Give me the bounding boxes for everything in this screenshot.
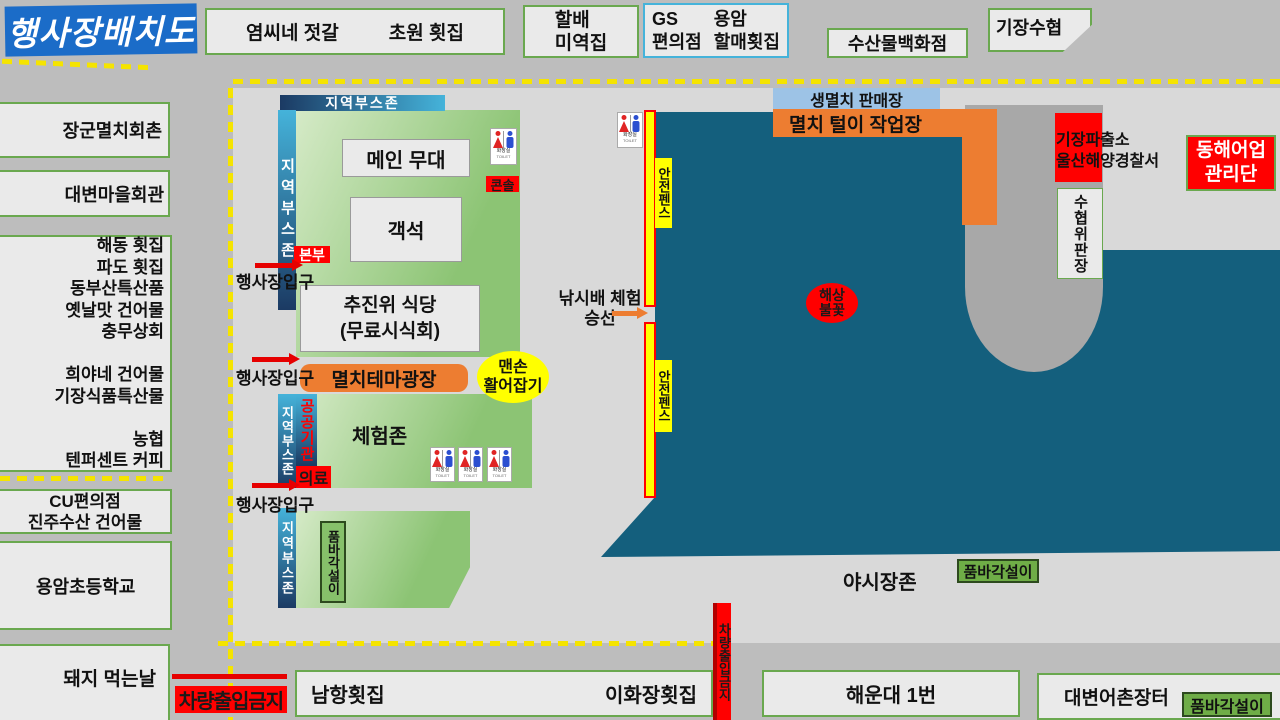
pumba-label: 품바각설이 bbox=[1190, 693, 1264, 717]
woman-icon bbox=[432, 450, 441, 467]
toilet-label-en: TOILET bbox=[493, 473, 507, 478]
fresh-anchovy-sale-area: 생멸치 판매장 bbox=[773, 88, 940, 109]
safety-fence-text: 안전펜스 bbox=[655, 158, 672, 228]
safety-fence-label-bottom: 안전펜스 bbox=[655, 360, 672, 432]
experience-zone-label: 체험존 bbox=[352, 420, 407, 449]
event-venue-map: 행사장배치도 염씨네 젓갈 초원 횟집 할배 미역집 GS 편의점 용암 할매횟… bbox=[0, 0, 1280, 720]
map-title-banner: 행사장배치도 bbox=[5, 3, 198, 56]
shop-yeomssi-jeotgal: 염씨네 젓갈 bbox=[246, 18, 339, 45]
public-org-label: 공공기관 bbox=[296, 394, 317, 466]
committee-dining-box: 추진위 식당 (무료시식회) bbox=[300, 285, 480, 352]
toilet-icon: 화장실 TOILET bbox=[490, 128, 517, 165]
woman-icon bbox=[493, 131, 502, 148]
man-icon bbox=[472, 450, 481, 467]
shop-box-bottom1: 남항횟집 이화장횟집 bbox=[295, 670, 713, 717]
shop-fish-department: 수산물백화점 bbox=[848, 30, 947, 56]
anchovy-shaking-area-arm bbox=[962, 137, 997, 225]
medical-label: 의료 bbox=[299, 465, 328, 489]
seating-box: 객석 bbox=[350, 197, 462, 262]
anchovy-shaking-label: 멸치 털이 작업장 bbox=[789, 110, 922, 137]
yongam-elementary-school: 용암초등학교 bbox=[36, 573, 135, 599]
public-org-bar: 공공기관 bbox=[296, 394, 317, 466]
toilet-icon: 화장실 TOILET bbox=[458, 447, 483, 482]
toilet-label-en: TOILET bbox=[623, 138, 637, 143]
shop-gs-store: GS 편의점 bbox=[652, 8, 702, 54]
main-stage-label: 메인 무대 bbox=[366, 144, 445, 173]
no-vehicle-bar bbox=[172, 674, 287, 679]
road-dash-left bbox=[0, 476, 168, 481]
road-dash-vertical bbox=[228, 88, 233, 720]
main-stage-box: 메인 무대 bbox=[342, 139, 470, 177]
police-station-label: 기장파출소 울산해양경찰서 bbox=[1056, 130, 1159, 172]
sea-fireworks-spot: 해상 불꽃 bbox=[806, 283, 858, 323]
shop-box-janggun: 장군멸치회촌 bbox=[0, 102, 170, 158]
no-vehicle-label: 차량출입금지 bbox=[179, 685, 283, 714]
shop-yongam-hoetjip: 용암 할매횟집 bbox=[714, 8, 780, 54]
shop-janggun-anchovy: 장군멸치회촌 bbox=[63, 117, 162, 143]
shop-box-gs-yongam: GS 편의점 용암 할매횟집 bbox=[643, 3, 789, 58]
shop-cu-jinju: CU편의점 진주수산 건어물 bbox=[28, 491, 142, 533]
shop-box-school: 용암초등학교 bbox=[0, 541, 172, 630]
shop-box-village-hall: 대변마을회관 bbox=[0, 170, 170, 217]
pumba-label: 품바각설이 bbox=[322, 523, 344, 601]
pumba-quay-box: 품바각설이 bbox=[957, 559, 1039, 583]
no-vehicle-strip: 차량출입금지 bbox=[713, 603, 731, 720]
shop-namhang: 남항횟집 bbox=[311, 679, 385, 708]
shop-gijang-suhyup: 기장수협 bbox=[996, 18, 1062, 38]
shop-box-gijang-suhyup: 기장수협 bbox=[988, 8, 1092, 52]
local-booth-zone-bottom-bar: 지역부스존 bbox=[278, 508, 296, 608]
local-booth-zone-label: 지역부스존 bbox=[278, 394, 296, 488]
local-booth-zone-label: 지역부스존 bbox=[278, 508, 296, 608]
shop-box-top1: 염씨네 젓갈 초원 횟집 bbox=[205, 8, 505, 55]
fishing-boat-boarding-label: 낚시배 체험 승선 bbox=[552, 289, 648, 329]
toilet-label-en: TOILET bbox=[497, 154, 511, 159]
daebyeon-market-label: 대변어촌장터 bbox=[1064, 683, 1169, 710]
local-booth-zone-top-bar: 지역부스존 bbox=[280, 95, 445, 111]
safety-fence-text: 안전펜스 bbox=[655, 360, 672, 432]
road-dash-top bbox=[233, 79, 1280, 84]
entrance-label-1: 행사장입구 bbox=[236, 268, 314, 293]
daebyeon-village-hall: 대변마을회관 bbox=[65, 181, 164, 207]
pig-eating-day: 돼지 먹는날 bbox=[63, 664, 156, 720]
shop-chowon-hoetjip: 초원 횟집 bbox=[389, 18, 464, 45]
road-dash-bottom bbox=[218, 641, 713, 646]
man-icon bbox=[501, 450, 510, 467]
man-icon bbox=[632, 115, 641, 132]
sea-fireworks-label: 해상 불꽃 bbox=[819, 288, 845, 318]
toilet-label-en: TOILET bbox=[464, 473, 478, 478]
no-vehicle-label: 차량출입금지 bbox=[717, 603, 731, 720]
night-market-zone-label: 야시장존 bbox=[843, 566, 917, 595]
pumba-label: 품바각설이 bbox=[963, 561, 1032, 582]
no-vehicle-sign: 차량출입금지 bbox=[175, 686, 287, 713]
shop-box-cu: CU편의점 진주수산 건어물 bbox=[0, 489, 172, 534]
shop-box-halbae: 할배 미역집 bbox=[523, 5, 639, 58]
donghae-fishery-box: 동해어업 관리단 bbox=[1186, 135, 1276, 191]
woman-icon bbox=[489, 450, 498, 467]
anchovy-theme-plaza-label: 멸치테마광장 bbox=[332, 365, 437, 392]
console-box: 콘솔 bbox=[486, 176, 519, 192]
bare-hand-catch-label: 맨손 활어잡기 bbox=[484, 358, 543, 396]
woman-icon bbox=[620, 115, 629, 132]
toilet-icon: 화장실 TOILET bbox=[617, 112, 643, 148]
seating-label: 객석 bbox=[388, 215, 425, 244]
local-booth-zone-label: 지역부스존 bbox=[325, 93, 399, 113]
suhyup-market-box: 수협위판장 bbox=[1057, 188, 1103, 279]
anchovy-theme-plaza: 멸치테마광장 bbox=[300, 364, 468, 392]
shop-box-fish-department: 수산물백화점 bbox=[827, 28, 968, 58]
console-label: 콘솔 bbox=[491, 175, 515, 194]
donghae-fishery-label: 동해어업 관리단 bbox=[1196, 139, 1266, 187]
entrance-arrow-icon bbox=[252, 483, 290, 488]
entrance-label-2: 행사장입구 bbox=[236, 364, 314, 389]
entrance-arrow-icon bbox=[252, 357, 290, 362]
man-icon bbox=[505, 131, 514, 148]
entrance-label-3: 행사장입구 bbox=[236, 491, 314, 516]
shop-ihwajang: 이화장횟집 bbox=[605, 679, 697, 708]
pumba-vertical-box: 품바각설이 bbox=[320, 521, 346, 603]
toilet-figures bbox=[493, 131, 514, 148]
anchovy-shaking-area: 멸치 털이 작업장 bbox=[773, 109, 997, 137]
shop-box-pig-day: 돼지 먹는날 bbox=[0, 644, 170, 720]
shop-box-list: 해동 횟집 파도 횟집 동부산특산품 옛날맛 건어물 충무상회 희야네 건어물 … bbox=[0, 235, 172, 472]
man-icon bbox=[444, 450, 453, 467]
toilet-icon: 화장실 TOILET bbox=[487, 447, 512, 482]
road-dash-title bbox=[2, 59, 152, 71]
committee-dining-label: 추진위 식당 (무료시식회) bbox=[340, 293, 440, 345]
safety-fence-label-top: 안전펜스 bbox=[655, 158, 672, 228]
fresh-anchovy-sale-label: 생멸치 판매장 bbox=[810, 87, 903, 111]
map-title: 행사장배치도 bbox=[7, 4, 196, 55]
haeundae-bus-label: 해운대 1번 bbox=[846, 679, 936, 708]
shop-halbae-miyeok: 할배 미역집 bbox=[555, 9, 607, 55]
pumba-bottom-box: 품바각설이 bbox=[1182, 692, 1272, 717]
medical-box: 의료 bbox=[296, 466, 331, 488]
suhyup-market-label: 수협위판장 bbox=[1058, 189, 1102, 278]
toilet-icon: 화장실 TOILET bbox=[430, 447, 455, 482]
toilet-label-en: TOILET bbox=[436, 473, 450, 478]
boarding-arrow-icon bbox=[612, 311, 638, 316]
local-booth-zone-mid-bar: 지역부스존 bbox=[278, 394, 296, 488]
shop-box-haeundae: 해운대 1번 bbox=[762, 670, 1020, 717]
shop-list: 해동 횟집 파도 횟집 동부산특산품 옛날맛 건어물 충무상회 희야네 건어물 … bbox=[55, 235, 164, 472]
woman-icon bbox=[460, 450, 469, 467]
bare-hand-catch-ellipse: 맨손 활어잡기 bbox=[477, 351, 549, 403]
